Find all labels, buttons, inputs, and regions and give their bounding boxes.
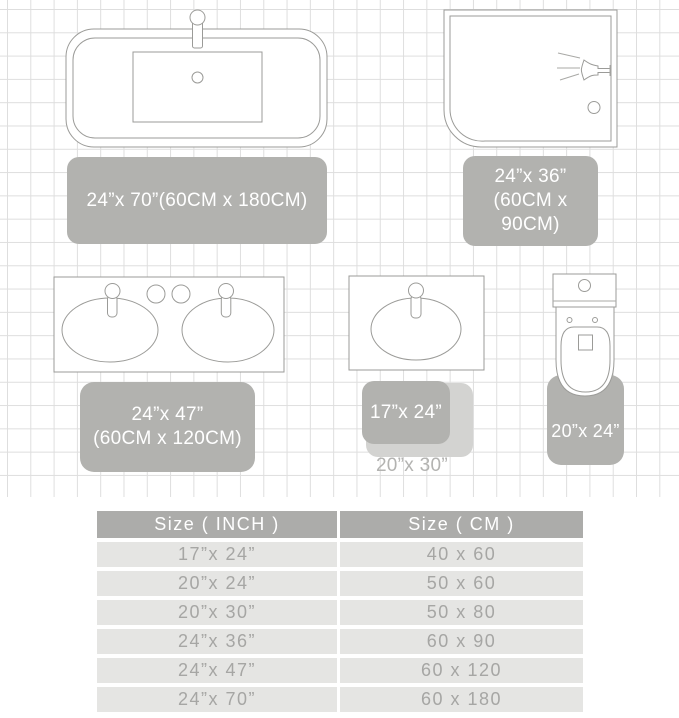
sink-rug-small: 17”x 24” [362,381,450,444]
faucet-icon [105,284,120,299]
row-inch: 24”x 70” [97,687,337,712]
row-cm: 40 x 60 [340,542,583,567]
sink-rug-small-label: 17”x 24” [370,401,442,425]
shower-drawing [438,4,628,154]
row-inch: 24”x 47” [97,658,337,683]
faucet-icon [409,283,424,298]
shower-rug-label-line1: 24”x 36” [494,165,566,189]
row-cm: 60 x 180 [340,687,583,712]
header-size-cm: Size ( CM ) [340,511,583,538]
toilet-drawing [545,268,630,403]
vanity-rug: 24”x 47” (60CM x 120CM) [80,382,255,472]
table-row: 24”x 70” 60 x 180 [97,687,583,712]
knob-icon [172,285,190,303]
toilet-drain [579,335,593,350]
bolt-icon [567,318,572,323]
row-inch: 17”x 24” [97,542,337,567]
table-row: 17”x 24” 40 x 60 [97,542,583,567]
double-vanity-drawing [48,270,293,380]
bathtub-drawing [55,5,335,150]
bathtub-basin [133,52,262,122]
table-row: 24”x 36” 60 x 90 [97,629,583,654]
table-row: 24”x 47” 60 x 120 [97,658,583,683]
shower-rug-label-line2: (60CM x 90CM) [463,189,598,237]
row-cm: 60 x 90 [340,629,583,654]
shower-rug: 24”x 36” (60CM x 90CM) [463,156,598,246]
faucet-icon [190,10,205,25]
bathroom-rug-size-guide: 24”x 70”(60CM x 180CM) 24”x 36” (60CM x … [0,0,679,718]
drain-icon [192,72,203,83]
header-size-inch: Size ( INCH ) [97,511,337,538]
size-table-header: Size ( INCH ) Size ( CM ) [97,511,583,538]
vanity-rug-label-line1: 24”x 47” [131,403,203,427]
drain-icon [588,102,600,114]
row-cm: 50 x 60 [340,571,583,596]
row-inch: 20”x 24” [97,571,337,596]
flush-button-icon [579,280,591,292]
vanity-rug-label-line2: (60CM x 120CM) [93,427,242,451]
faucet-icon [219,284,234,299]
toilet-rug-label: 20”x 24” [551,419,619,443]
bolt-icon [593,318,598,323]
row-inch: 20”x 30” [97,600,337,625]
knob-icon [147,285,165,303]
single-sink-drawing [343,270,493,375]
row-inch: 24”x 36” [97,629,337,654]
bathtub-rug: 24”x 70”(60CM x 180CM) [67,157,327,244]
bathtub-rug-label: 24”x 70”(60CM x 180CM) [87,189,308,213]
row-cm: 60 x 120 [340,658,583,683]
table-row: 20”x 30” 50 x 80 [97,600,583,625]
row-cm: 50 x 80 [340,600,583,625]
size-table: Size ( INCH ) Size ( CM ) 17”x 24” 40 x … [97,511,583,716]
sink-rug-large-label: 20”x 30” [352,455,472,477]
table-row: 20”x 24” 50 x 60 [97,571,583,596]
